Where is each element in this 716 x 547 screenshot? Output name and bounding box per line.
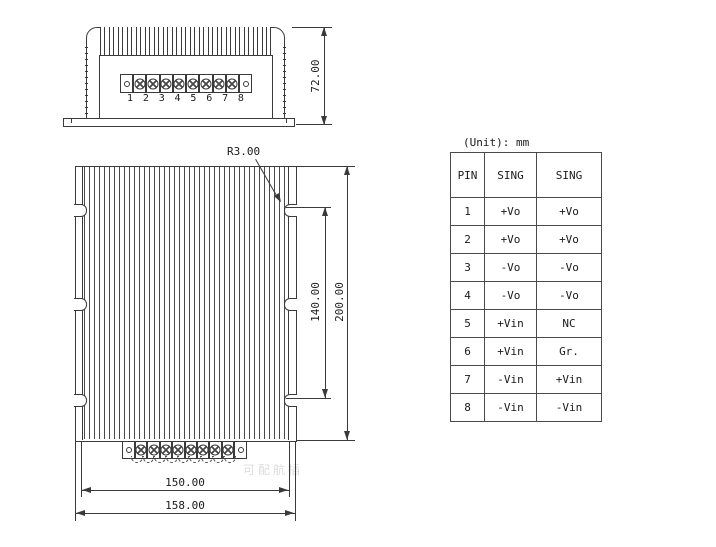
screw-arc <box>154 456 166 463</box>
dim-label-fin-width: 150.00 <box>155 477 215 489</box>
screw-icon <box>214 78 225 89</box>
dimension-line-158 <box>75 513 295 514</box>
pin-number: 5 <box>190 93 196 104</box>
signal-cell: +Vin <box>484 310 536 337</box>
pin-number: 2 <box>143 93 149 104</box>
screw-icon <box>185 445 196 456</box>
terminal-cell <box>172 75 185 92</box>
pin-number: 1 <box>127 93 133 104</box>
mounting-slot <box>284 394 297 407</box>
table-row: 2+Vo+Vo <box>451 225 601 253</box>
table-row: 8-Vin-Vin <box>451 393 601 421</box>
pin-cell: 4 <box>451 282 484 309</box>
screw-icon <box>210 445 221 456</box>
pin-number: 8 <box>238 93 244 104</box>
mounting-slot <box>74 298 87 311</box>
dimension-line-200 <box>347 166 348 440</box>
arrowhead <box>322 389 328 398</box>
pin-number: 7 <box>222 93 228 104</box>
screw-arc <box>131 456 143 463</box>
signal-cell: +Vin <box>484 338 536 365</box>
dimension-line-72 <box>324 27 325 125</box>
screw-icon <box>134 78 145 89</box>
signal-cell: Gr. <box>536 338 601 365</box>
table-header-row: PIN SING SING <box>451 153 601 197</box>
terminal-cell <box>225 75 238 92</box>
screw-arc <box>143 456 155 463</box>
serration-edge <box>85 44 88 120</box>
header-pin: PIN <box>451 153 484 197</box>
terminal-cell <box>185 75 198 92</box>
signal-cell: +Vo <box>484 226 536 253</box>
mounting-slot <box>74 394 87 407</box>
screw-arc <box>201 456 213 463</box>
end-hole-icon <box>238 447 244 453</box>
signal-cell: -Vin <box>484 394 536 421</box>
mounting-slot <box>74 204 87 217</box>
base-notch <box>71 119 72 123</box>
table-body: 1+Vo+Vo2+Vo+Vo3-Vo-Vo4-Vo-Vo5+VinNC6+Vin… <box>451 197 601 421</box>
dimension-line-150 <box>81 490 289 491</box>
extension-line <box>295 441 296 521</box>
pin-signal-table: PIN SING SING 1+Vo+Vo2+Vo+Vo3-Vo-Vo4-Vo-… <box>450 152 602 422</box>
screw-icon <box>174 78 185 89</box>
screw-icon <box>187 78 198 89</box>
dim-label-body-length: 200.00 <box>334 277 346 327</box>
pin-cell: 5 <box>451 310 484 337</box>
table-row: 7-Vin+Vin <box>451 365 601 393</box>
screw-icon <box>161 78 172 89</box>
arrowhead <box>321 116 327 125</box>
screw-icon <box>222 445 233 456</box>
screw-arc <box>178 456 190 463</box>
header-sing-1: SING <box>484 153 536 197</box>
dim-label-front-height: 72.00 <box>310 54 322 98</box>
terminal-cell <box>198 75 211 92</box>
pin-cell: 1 <box>451 198 484 225</box>
arrowhead <box>279 487 288 493</box>
arrowhead <box>285 510 294 516</box>
table-row: 4-Vo-Vo <box>451 281 601 309</box>
signal-cell: -Vo <box>536 254 601 281</box>
terminal-cell <box>159 75 172 92</box>
mount-hole <box>121 75 132 92</box>
screw-icon <box>227 78 238 89</box>
table-row: 1+Vo+Vo <box>451 197 601 225</box>
signal-cell: +Vo <box>536 198 601 225</box>
arrowhead <box>344 166 350 175</box>
signal-cell: -Vo <box>484 254 536 281</box>
screw-arc <box>166 456 178 463</box>
arrowhead <box>321 27 327 36</box>
terminal-cell <box>132 75 145 92</box>
hidden-screw-arcs <box>131 456 236 463</box>
table-row: 5+VinNC <box>451 309 601 337</box>
end-hole-icon <box>124 81 130 87</box>
dimension-line-140 <box>325 207 326 398</box>
watermark-text: 可配航插 <box>243 461 303 478</box>
dim-label-base-width: 158.00 <box>155 500 215 512</box>
end-hole-icon <box>243 81 249 87</box>
extension-line <box>289 441 290 497</box>
screw-arc <box>213 456 225 463</box>
extension-line <box>75 441 76 521</box>
pin-number: 4 <box>175 93 181 104</box>
terminal-block-front <box>120 74 252 93</box>
serration-edge <box>283 44 286 120</box>
arrowhead <box>344 431 350 440</box>
screw-arc <box>189 456 201 463</box>
signal-cell: -Vin <box>484 366 536 393</box>
heatsink-fins-front <box>100 27 270 56</box>
signal-cell: -Vin <box>536 394 601 421</box>
arrowhead <box>76 510 85 516</box>
extension-line <box>286 398 331 399</box>
pin-number-row: 12345678 <box>127 93 244 104</box>
arrowhead <box>322 207 328 216</box>
signal-cell: +Vo <box>536 226 601 253</box>
screw-icon <box>148 445 159 456</box>
pin-cell: 2 <box>451 226 484 253</box>
technical-drawing-canvas: 12345678 72.00 R3.00 可配航插 <box>0 0 716 547</box>
table-row: 6+VinGr. <box>451 337 601 365</box>
signal-cell: -Vo <box>536 282 601 309</box>
table-row: 3-Vo-Vo <box>451 253 601 281</box>
screw-icon <box>160 445 171 456</box>
dim-label-corner-radius: R3.00 <box>227 146 260 158</box>
signal-cell: +Vin <box>536 366 601 393</box>
end-hole-icon <box>126 447 132 453</box>
signal-cell: NC <box>536 310 601 337</box>
pin-cell: 8 <box>451 394 484 421</box>
signal-cell: -Vo <box>484 282 536 309</box>
pin-number: 6 <box>206 93 212 104</box>
screw-icon <box>136 445 147 456</box>
mounting-slot <box>284 204 297 217</box>
terminal-cell <box>212 75 225 92</box>
base-notch <box>286 119 287 123</box>
screw-icon <box>173 445 184 456</box>
screw-icon <box>147 78 158 89</box>
screw-icon <box>200 78 211 89</box>
pin-cell: 3 <box>451 254 484 281</box>
unit-label: (Unit): mm <box>463 136 529 149</box>
header-sing-2: SING <box>536 153 601 197</box>
pin-cell: 6 <box>451 338 484 365</box>
terminal-cell <box>145 75 158 92</box>
pin-number: 3 <box>159 93 165 104</box>
signal-cell: +Vo <box>484 198 536 225</box>
mounting-base-plate <box>63 118 295 127</box>
screw-icon <box>198 445 209 456</box>
screw-arc <box>224 456 236 463</box>
pin-cell: 7 <box>451 366 484 393</box>
heatsink-fins-plan <box>84 167 287 439</box>
arrowhead <box>82 487 91 493</box>
dim-label-slot-spacing: 140.00 <box>310 277 322 327</box>
mounting-slot <box>284 298 297 311</box>
extension-line <box>297 440 355 441</box>
mount-hole <box>238 75 251 92</box>
